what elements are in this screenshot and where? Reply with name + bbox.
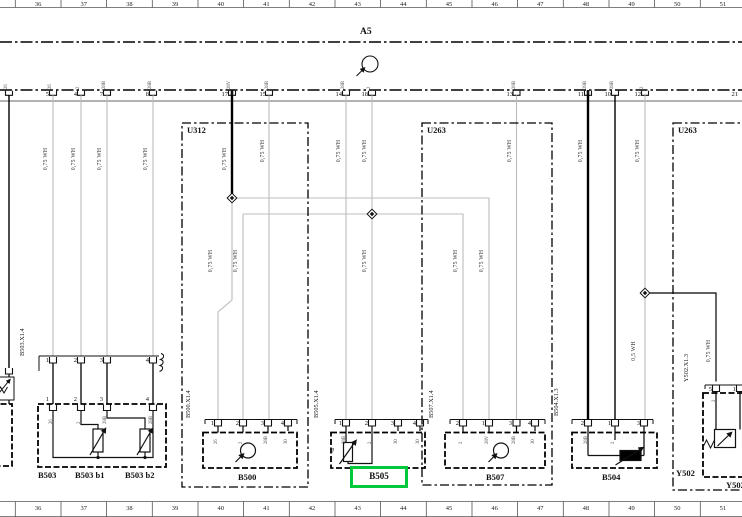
b503-internals xyxy=(53,411,153,460)
b505-box xyxy=(331,433,425,469)
component-boxes xyxy=(0,393,742,477)
splice-diamonds xyxy=(227,193,650,298)
u-boxes xyxy=(182,123,742,490)
wiring-diagram-linework xyxy=(0,0,742,517)
gray-wires xyxy=(53,95,645,420)
ruler-grid xyxy=(0,0,742,517)
u263-right-box xyxy=(673,123,742,490)
y502-valve-icon xyxy=(703,430,736,449)
a5-pin-brackets xyxy=(6,90,649,95)
black-wires xyxy=(9,95,740,455)
b507-sensor-icon xyxy=(489,443,509,462)
y502-box xyxy=(703,393,742,477)
a5-boundary-lines xyxy=(0,42,742,90)
twist-symbol xyxy=(160,354,164,372)
a5-internal-sensor-icon xyxy=(357,56,379,76)
left-partial-box xyxy=(0,404,12,466)
b507-box xyxy=(445,433,545,469)
b500-box xyxy=(203,433,297,469)
b500-sensor-icon xyxy=(236,443,256,462)
u263-mid-box xyxy=(422,123,552,485)
b504-heater-icon xyxy=(588,448,644,466)
connector-bars xyxy=(39,354,742,427)
left-partial-sensor xyxy=(0,368,14,400)
wiring-diagram-page: A5 U312 U263 U263 B503.X1.4 B500.X1.4 B5… xyxy=(0,0,742,517)
